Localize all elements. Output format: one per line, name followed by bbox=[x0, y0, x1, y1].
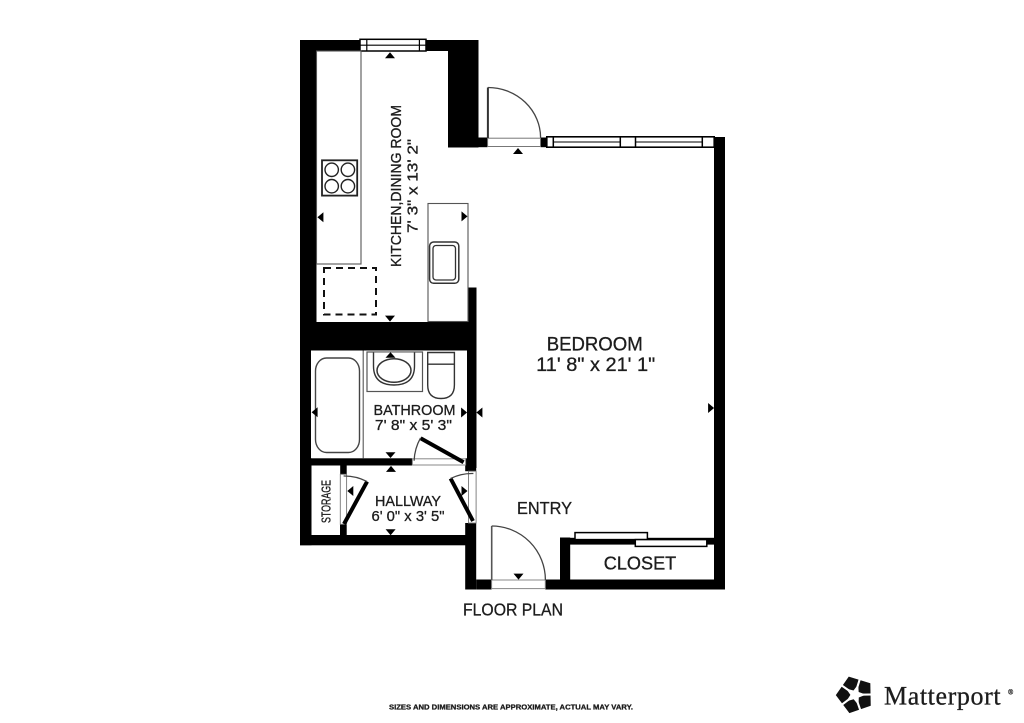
svg-text:Matterport: Matterport bbox=[884, 682, 1001, 711]
svg-text:®: ® bbox=[1008, 689, 1014, 697]
svg-text:11' 8" x 21' 1": 11' 8" x 21' 1" bbox=[536, 355, 655, 376]
svg-text:STORAGE: STORAGE bbox=[319, 480, 334, 523]
svg-text:ENTRY: ENTRY bbox=[517, 498, 572, 518]
svg-text:SIZES AND DIMENSIONS ARE APPRO: SIZES AND DIMENSIONS ARE APPROXIMATE, AC… bbox=[389, 703, 633, 712]
svg-text:CLOSET: CLOSET bbox=[604, 553, 677, 573]
svg-text:BEDROOM: BEDROOM bbox=[547, 334, 643, 355]
svg-text:FLOOR PLAN: FLOOR PLAN bbox=[463, 599, 563, 619]
svg-text:7' 8" x 5' 3": 7' 8" x 5' 3" bbox=[375, 417, 452, 434]
svg-text:7' 3" x 13' 2": 7' 3" x 13' 2" bbox=[405, 139, 422, 233]
svg-text:KITCHEN,DINING ROOM: KITCHEN,DINING ROOM bbox=[388, 105, 405, 267]
svg-text:6' 0" x 3' 5": 6' 0" x 3' 5" bbox=[372, 508, 445, 525]
